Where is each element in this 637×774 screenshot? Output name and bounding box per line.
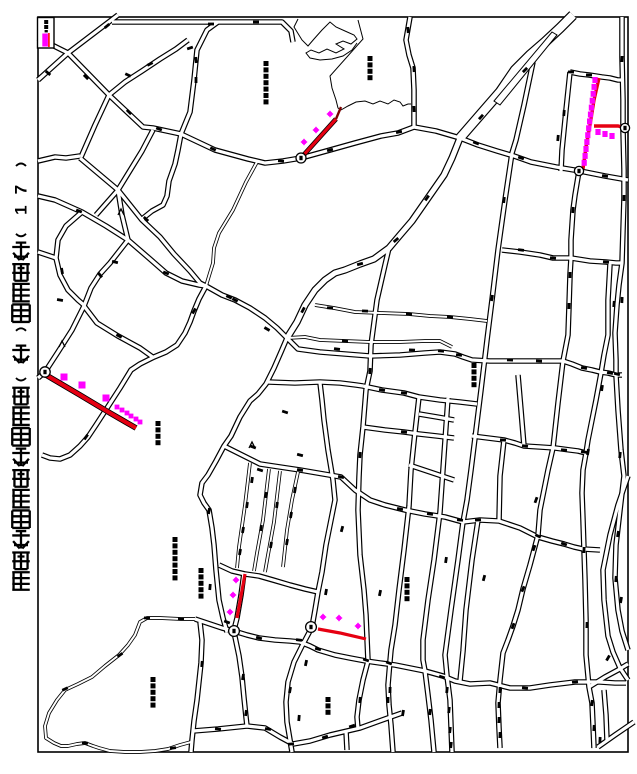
svg-text:7: 7: [12, 185, 31, 194]
svg-text:1: 1: [12, 205, 31, 214]
